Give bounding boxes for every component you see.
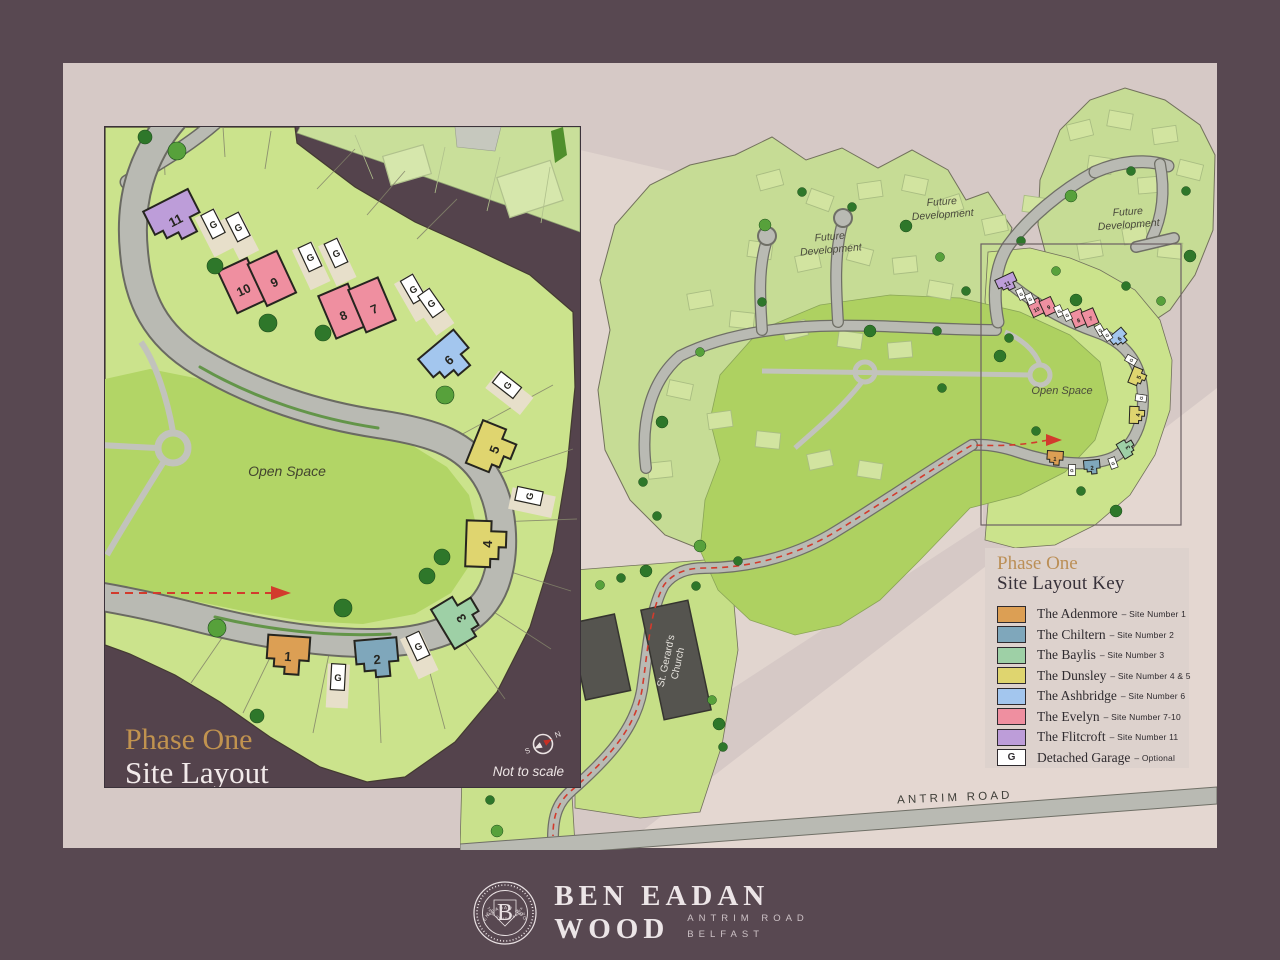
tree-icon bbox=[1052, 267, 1061, 276]
tree-icon bbox=[719, 743, 728, 752]
future-house-outline bbox=[837, 330, 863, 349]
brand-badge-icon: BEN EADAN WOOD ANTRIM ROAD · BELFAST B E… bbox=[471, 879, 539, 947]
brand-subtitle: ANTRIM ROAD BELFAST bbox=[687, 911, 809, 941]
not-to-scale-label: Not to scale bbox=[493, 764, 564, 779]
svg-text:B: B bbox=[497, 900, 513, 926]
tree-icon bbox=[696, 348, 705, 357]
mini-garage: G bbox=[1135, 394, 1147, 402]
brand-footer: BEN EADAN WOOD ANTRIM ROAD · BELFAST B E… bbox=[0, 866, 1280, 960]
legend-row: The Chiltern– Site Number 2 bbox=[997, 624, 1189, 645]
legend-row: The Evelyn– Site Number 7-10 bbox=[997, 706, 1189, 727]
brand-wordmark: BEN EADAN WOOD ANTRIM ROAD BELFAST bbox=[554, 882, 809, 943]
legend-row: The Flitcroft– Site Number 11 bbox=[997, 727, 1189, 748]
tree-icon bbox=[864, 325, 876, 337]
tree-icon bbox=[1127, 167, 1136, 176]
legend-rows: The Adenmore– Site Number 1The Chiltern–… bbox=[997, 604, 1189, 768]
brand-line2: WOOD bbox=[554, 915, 669, 944]
svg-text:4: 4 bbox=[480, 539, 495, 548]
legend-row: The Adenmore– Site Number 1 bbox=[997, 604, 1189, 625]
legend-desc: – Site Number 2 bbox=[1110, 630, 1174, 640]
tree-icon bbox=[938, 384, 947, 393]
future-house-outline bbox=[707, 410, 733, 429]
tree-icon bbox=[1070, 294, 1082, 306]
tree-icon bbox=[656, 416, 668, 428]
legend-name: The Flitcroft bbox=[1037, 729, 1106, 745]
tree-icon bbox=[994, 350, 1006, 362]
legend-desc: – Site Number 4 & 5 bbox=[1110, 671, 1190, 681]
tree-icon bbox=[639, 478, 648, 487]
tree-icon bbox=[1122, 282, 1131, 291]
tree-icon bbox=[207, 258, 223, 274]
tree-icon bbox=[798, 188, 807, 197]
legend-name: The Adenmore bbox=[1037, 606, 1118, 622]
legend-row: The Baylis– Site Number 3 bbox=[997, 645, 1189, 666]
tree-icon bbox=[694, 540, 706, 552]
inset-title: Site Layout bbox=[125, 755, 269, 788]
tree-icon bbox=[708, 696, 717, 705]
future-house-outline bbox=[1152, 125, 1178, 144]
legend-name: The Dunsley bbox=[1037, 668, 1106, 684]
tree-icon bbox=[933, 327, 942, 336]
tree-icon bbox=[1032, 427, 1041, 436]
tree-icon bbox=[962, 287, 971, 296]
tree-icon bbox=[168, 142, 186, 160]
legend-desc: – Site Number 3 bbox=[1100, 650, 1164, 660]
garage: G bbox=[330, 664, 345, 691]
svg-text:G: G bbox=[334, 673, 342, 684]
tree-icon bbox=[713, 718, 725, 730]
legend-desc: – Site Number 7-10 bbox=[1104, 712, 1181, 722]
legend-desc: – Site Number 6 bbox=[1121, 691, 1185, 701]
tree-icon bbox=[1065, 190, 1077, 202]
legend-desc: – Site Number 11 bbox=[1110, 732, 1179, 742]
legend-swatch bbox=[997, 729, 1026, 746]
tree-icon bbox=[653, 512, 662, 521]
legend-row: The Dunsley– Site Number 4 & 5 bbox=[997, 665, 1189, 686]
tree-icon bbox=[434, 549, 450, 565]
tree-icon bbox=[334, 599, 352, 617]
tree-icon bbox=[208, 619, 226, 637]
legend-row: GDetached Garage– Optional bbox=[997, 747, 1189, 768]
tree-icon bbox=[138, 130, 152, 144]
svg-text:1: 1 bbox=[284, 649, 292, 664]
svg-text:Open Space: Open Space bbox=[1031, 385, 1092, 397]
future-house-outline bbox=[857, 460, 883, 480]
legend-swatch bbox=[997, 708, 1026, 725]
brand-line1: BEN EADAN bbox=[554, 882, 809, 911]
svg-text:Est: Est bbox=[487, 912, 492, 916]
site-layout-key: Phase One Site Layout Key The Adenmore– … bbox=[985, 548, 1189, 768]
tree-icon bbox=[734, 557, 743, 566]
tree-icon bbox=[1157, 297, 1166, 306]
tree-icon bbox=[1005, 334, 1014, 343]
svg-text:G: G bbox=[1070, 468, 1074, 473]
tree-icon bbox=[1184, 250, 1196, 262]
tree-icon bbox=[758, 298, 767, 307]
tree-icon bbox=[315, 325, 331, 341]
tree-icon bbox=[486, 796, 495, 805]
tree-icon bbox=[1110, 505, 1122, 517]
tree-icon bbox=[1182, 187, 1191, 196]
svg-text:2024: 2024 bbox=[517, 912, 525, 916]
legend-swatch: G bbox=[997, 749, 1026, 766]
legend-swatch bbox=[997, 647, 1026, 664]
legend-swatch bbox=[997, 626, 1026, 643]
future-house-outline bbox=[887, 341, 912, 359]
future-house-outline bbox=[729, 311, 755, 329]
svg-text:2: 2 bbox=[373, 652, 382, 668]
phase-one-site-layout-map: GGGGGGGGGG 1110987654321 Open Space Phas… bbox=[104, 126, 581, 788]
legend-swatch bbox=[997, 688, 1026, 705]
legend-name: The Evelyn bbox=[1037, 709, 1100, 725]
legend-name: The Ashbridge bbox=[1037, 688, 1117, 704]
open-space-label: Open Space bbox=[248, 463, 326, 479]
legend-title-accent: Phase One bbox=[997, 554, 1189, 574]
future-house-outline bbox=[755, 431, 781, 449]
legend-swatch bbox=[997, 606, 1026, 623]
legend-title: Site Layout Key bbox=[997, 574, 1189, 595]
svg-text:Future: Future bbox=[1112, 205, 1143, 219]
mini-garage: G bbox=[1068, 464, 1075, 475]
legend-name: The Baylis bbox=[1037, 647, 1096, 663]
legend-name: The Chiltern bbox=[1037, 627, 1106, 643]
tree-icon bbox=[692, 582, 701, 591]
tree-icon bbox=[596, 581, 605, 590]
legend-swatch bbox=[997, 667, 1026, 684]
tree-icon bbox=[250, 709, 264, 723]
tree-icon bbox=[491, 825, 503, 837]
tree-icon bbox=[617, 574, 626, 583]
future-house-outline bbox=[892, 256, 918, 274]
inset-title-accent: Phase One bbox=[125, 723, 252, 756]
tree-icon bbox=[436, 386, 454, 404]
legend-name: Detached Garage bbox=[1037, 750, 1130, 766]
svg-text:Future: Future bbox=[926, 195, 957, 209]
legend-row: The Ashbridge– Site Number 6 bbox=[997, 686, 1189, 707]
future-house-outline bbox=[857, 180, 883, 199]
tree-icon bbox=[848, 203, 857, 212]
tree-icon bbox=[759, 219, 771, 231]
tree-icon bbox=[1077, 487, 1086, 496]
tree-icon bbox=[640, 565, 652, 577]
tree-icon bbox=[936, 253, 945, 262]
legend-desc: – Site Number 1 bbox=[1122, 609, 1186, 619]
tree-icon bbox=[419, 568, 435, 584]
tree-icon bbox=[259, 314, 277, 332]
legend-desc: – Optional bbox=[1134, 753, 1175, 763]
tree-icon bbox=[900, 220, 912, 232]
